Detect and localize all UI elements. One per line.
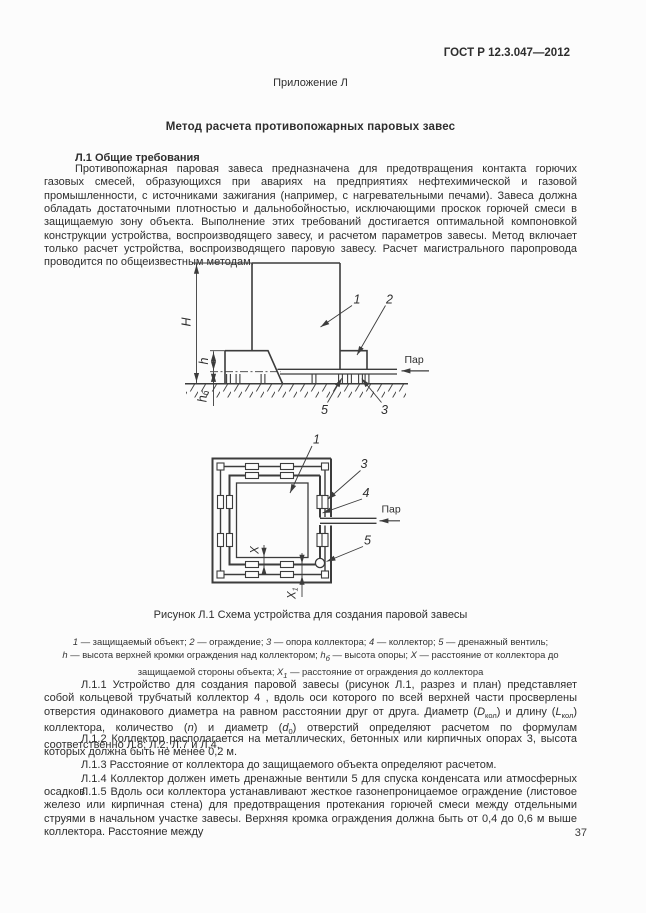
leader-callout-1 xyxy=(321,306,353,328)
document-page: ГОСТ Р 12.3.047—2012 Приложение Л Метод … xyxy=(0,0,646,913)
legend-text: — дренажный вентиль; xyxy=(443,636,548,647)
symbol-L-subscript: кол xyxy=(562,711,574,720)
page-title: Метод расчета противопожарных паровых за… xyxy=(44,121,577,133)
paragraph-l13: Л.1.3 Расстояние от коллектора до защища… xyxy=(44,759,577,772)
legend-text: — расстояние от ограждения до коллектора xyxy=(287,666,483,677)
dim-h-label: h xyxy=(197,357,211,364)
drain-valve-circle xyxy=(315,558,324,567)
callout-1-label: 1 xyxy=(313,433,320,447)
leader-callout-3 xyxy=(328,471,361,500)
figure-caption: Рисунок Л.1 Схема устройства для создани… xyxy=(44,609,577,621)
annex-label: Приложение Л xyxy=(44,77,577,89)
fence-left-outline xyxy=(225,351,283,384)
dim-X1-label: X1 xyxy=(287,587,300,600)
steam-label: Пар xyxy=(405,354,424,366)
callout-5-label: 5 xyxy=(364,534,371,548)
protected-object-outline xyxy=(252,263,340,369)
standard-number: ГОСТ Р 12.3.047—2012 xyxy=(444,47,570,59)
ground-hatching xyxy=(186,385,406,398)
paragraph-l12: Л.1.2 Коллектор располагается на металли… xyxy=(44,733,577,760)
callout-5-label: 5 xyxy=(321,403,328,417)
supply-pipe xyxy=(320,518,377,523)
callout-4-label: 4 xyxy=(363,486,370,500)
callout-1-label: 1 xyxy=(354,293,361,307)
dim-H-label: H xyxy=(180,317,194,327)
legend-text: — ограждение; xyxy=(195,636,266,647)
collector-pipe xyxy=(278,369,398,374)
legend-text: — защищаемый объект; xyxy=(78,636,189,647)
collector-supports xyxy=(227,374,369,383)
steam-label: Пар xyxy=(382,504,401,516)
figure-legend: 1 — защищаемый объект; 2 — ограждение; 3… xyxy=(44,635,577,682)
leader-callout-2 xyxy=(357,306,386,356)
symbol-D: D xyxy=(477,706,485,718)
collector-support-blocks xyxy=(217,463,329,578)
legend-text: — опора коллектора; xyxy=(271,636,369,647)
paragraph-text: ) и длину ( xyxy=(497,706,556,718)
paragraph-l15: Л.1.5 Вдоль оси коллектора устанавливают… xyxy=(44,786,577,839)
callout-3-label: 3 xyxy=(381,403,388,417)
callout-3-label: 3 xyxy=(361,457,368,471)
legend-text: — коллектор; xyxy=(374,636,438,647)
callout-2-label: 2 xyxy=(385,293,393,307)
fence-right-outline xyxy=(340,351,367,370)
dim-X-label: X xyxy=(250,545,262,555)
symbol-D-subscript: кол xyxy=(485,711,497,720)
legend-text: — высота верхней кромки ограждения над к… xyxy=(68,649,321,660)
figure-plan-view: 1 3 4 5 Пар X X1 xyxy=(200,428,412,606)
protected-object-square xyxy=(237,483,309,558)
figure-elevation-view: H h hб 1 2 5 3 Пар xyxy=(180,250,435,420)
legend-text: — высота опоры; xyxy=(330,649,411,660)
page-number: 37 xyxy=(575,827,587,839)
collector-ring xyxy=(230,476,321,565)
